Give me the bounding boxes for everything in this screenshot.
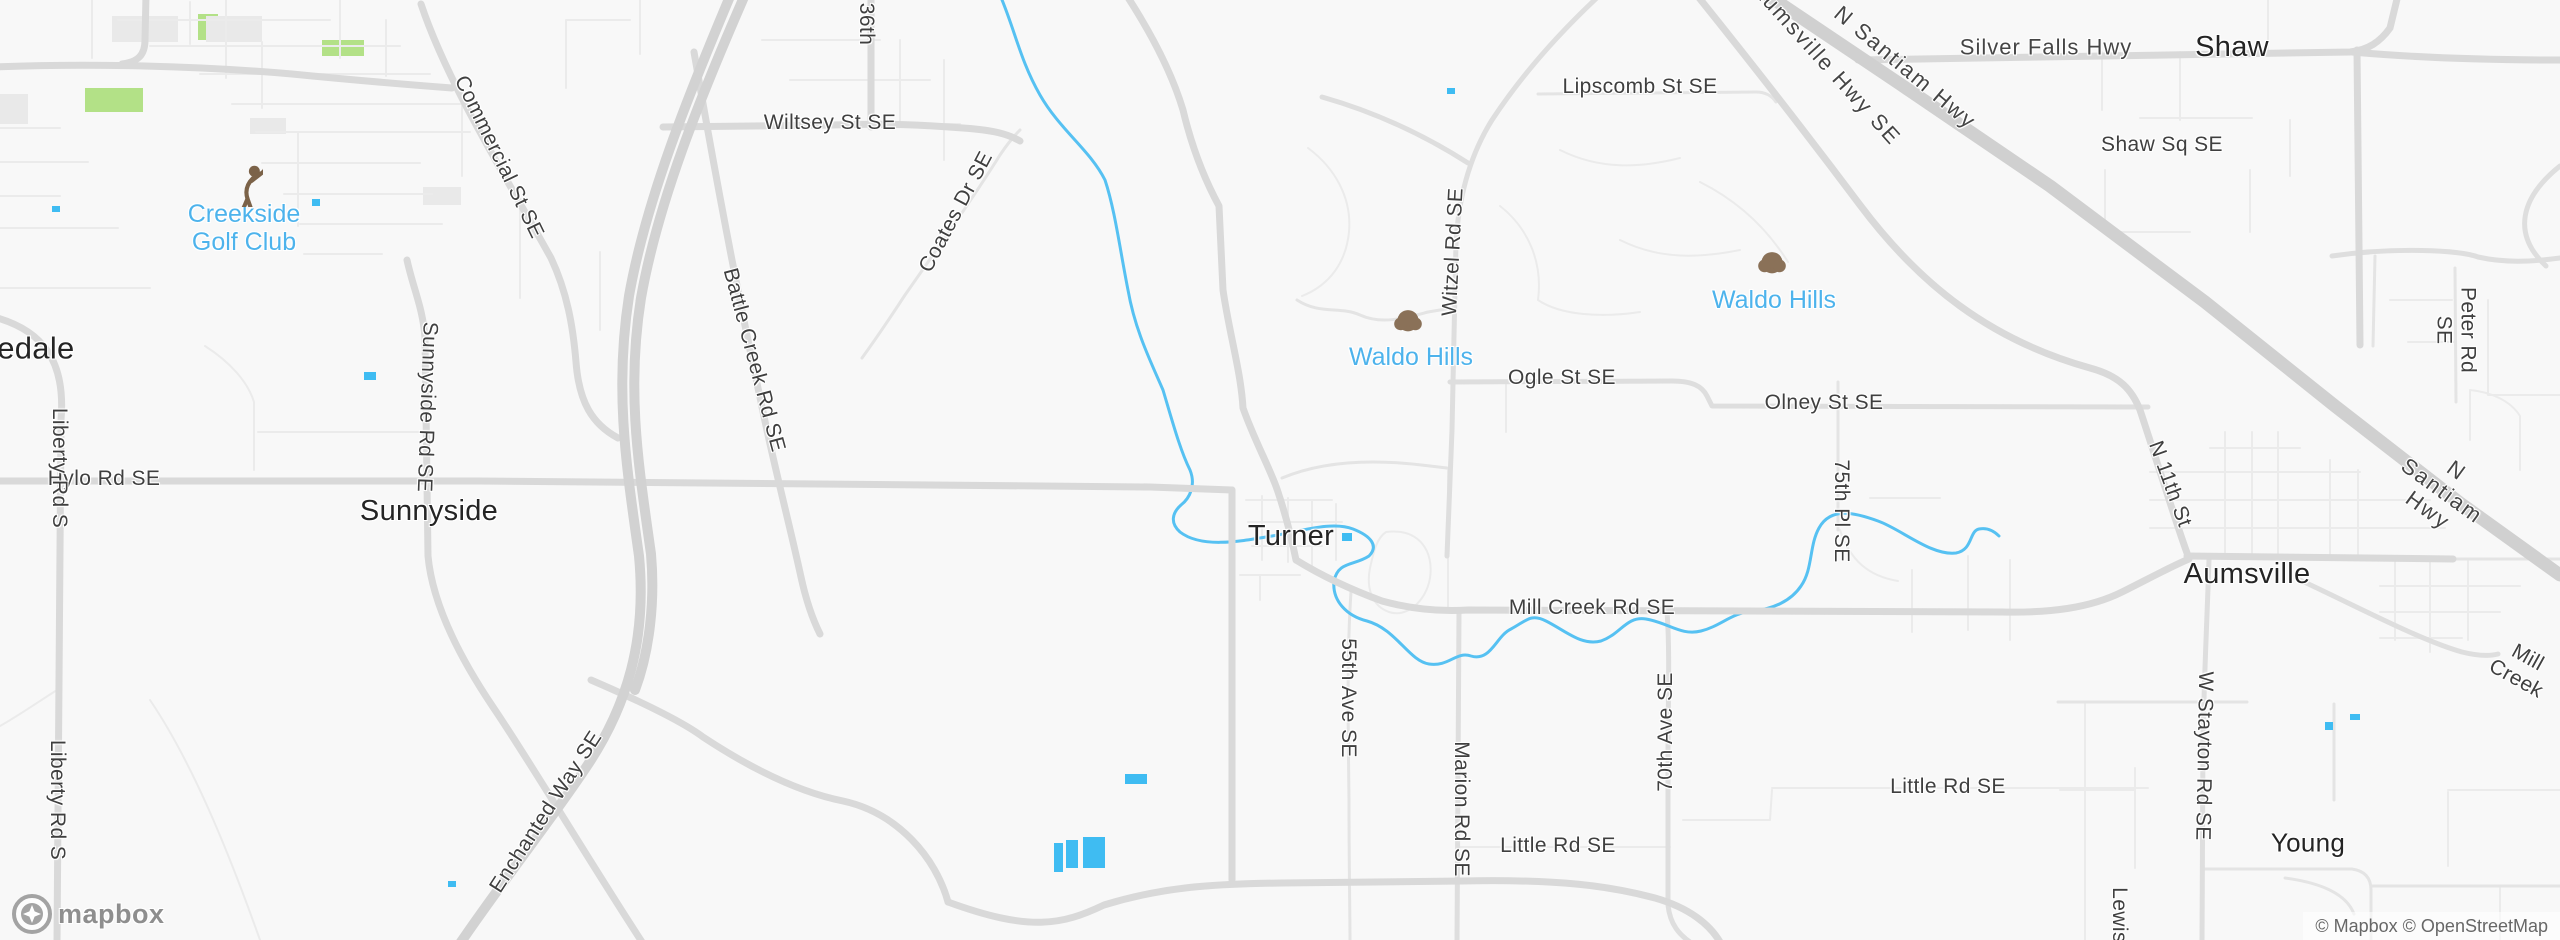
mapbox-logo[interactable]: mapbox bbox=[10, 892, 165, 936]
mapbox-logo-icon bbox=[10, 892, 54, 936]
attribution-text: © Mapbox © OpenStreetMap bbox=[2315, 916, 2548, 937]
map-tiles bbox=[0, 0, 2560, 940]
map-canvas[interactable]: sedaleCreekside Golf ClubHylo Rd SELiber… bbox=[0, 0, 2560, 940]
map-attribution[interactable]: © Mapbox © OpenStreetMap bbox=[2303, 912, 2560, 940]
mapbox-logo-text: mapbox bbox=[58, 899, 165, 930]
